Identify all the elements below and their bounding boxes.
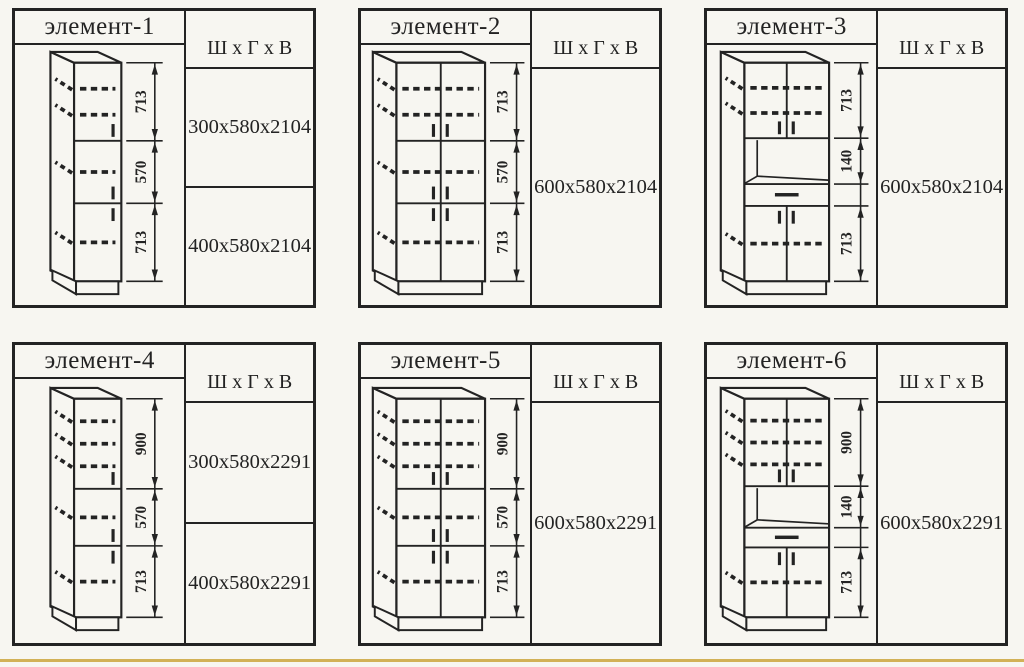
panel-6-dims-column: Ш x Г x В 600x580x2291: [878, 345, 1005, 643]
svg-text:713: 713: [495, 90, 512, 113]
panel-6-size-value: 600x580x2291: [878, 403, 1005, 643]
svg-text:713: 713: [839, 232, 856, 255]
panel-4-dims-column: Ш x Г x В 300x580x2291 400x580x2291: [186, 345, 313, 643]
panel-1-left-column: элемент-1 713570713: [15, 11, 186, 305]
panel-6-title: элемент-6: [707, 345, 876, 379]
panel-2-size-value: 600x580x2104: [532, 69, 659, 305]
svg-text:713: 713: [495, 231, 512, 254]
panel-5-dims-column: Ш x Г x В 600x580x2291: [532, 345, 659, 643]
svg-text:900: 900: [495, 432, 512, 455]
panel-2-left-column: элемент-2 713570713: [361, 11, 532, 305]
element-panel-3: элемент-3 713140713 Ш x Г x В 600x580x21…: [704, 8, 1008, 308]
element-panel-4: элемент-4 900570713 Ш x Г x В 300x580x22…: [12, 342, 316, 646]
svg-text:570: 570: [495, 160, 512, 183]
panel-4-size-value-2: 400x580x2291: [186, 524, 313, 643]
cabinet-sketch-3: 713140713: [707, 45, 876, 305]
element-panel-6: элемент-6 900140713 Ш x Г x В 600x580x22…: [704, 342, 1008, 646]
panel-4-dims-header: Ш x Г x В: [186, 345, 313, 403]
panel-4-title: элемент-4: [15, 345, 184, 379]
panel-1-size-value-2: 400x580x2104: [186, 188, 313, 305]
svg-text:570: 570: [495, 506, 512, 529]
panel-6-dims-header: Ш x Г x В: [878, 345, 1005, 403]
cabinet-drawing-5: 900570713: [361, 379, 530, 643]
scanned-furniture-spec-sheet: элемент-1 713570713 Ш x Г x В 300x580x21…: [0, 0, 1024, 667]
svg-text:713: 713: [133, 231, 150, 254]
svg-text:140: 140: [839, 149, 856, 172]
panel-6-left-column: элемент-6 900140713: [707, 345, 878, 643]
element-panel-2: элемент-2 713570713 Ш x Г x В 600x580x21…: [358, 8, 662, 308]
cabinet-sketch-6: 900140713: [707, 379, 876, 643]
svg-text:713: 713: [839, 89, 856, 112]
svg-text:713: 713: [133, 90, 150, 113]
panel-3-size-value: 600x580x2104: [878, 69, 1005, 305]
panel-3-dims-header: Ш x Г x В: [878, 11, 1005, 69]
panel-5-title: элемент-5: [361, 345, 530, 379]
scan-accent-line: [0, 659, 1024, 662]
cabinet-sketch-5: 900570713: [361, 379, 530, 643]
panel-4-left-column: элемент-4 900570713: [15, 345, 186, 643]
svg-text:713: 713: [839, 571, 856, 594]
panel-1-dims-header: Ш x Г x В: [186, 11, 313, 69]
cabinet-sketch-2: 713570713: [361, 45, 530, 305]
cabinet-sketch-4: 900570713: [15, 379, 184, 643]
panels-grid: элемент-1 713570713 Ш x Г x В 300x580x21…: [12, 8, 1008, 646]
cabinet-drawing-1: 713570713: [15, 45, 184, 305]
svg-text:570: 570: [133, 160, 150, 183]
panel-1-dims-column: Ш x Г x В 300x580x2104 400x580x2104: [186, 11, 313, 305]
panel-3-dims-column: Ш x Г x В 600x580x2104: [878, 11, 1005, 305]
svg-text:900: 900: [133, 432, 150, 455]
cabinet-drawing-4: 900570713: [15, 379, 184, 643]
svg-text:570: 570: [133, 506, 150, 529]
svg-text:140: 140: [839, 495, 856, 518]
panel-1-size-value-1: 300x580x2104: [186, 69, 313, 188]
cabinet-sketch-1: 713570713: [15, 45, 184, 305]
panel-3-title: элемент-3: [707, 11, 876, 45]
panel-2-title: элемент-2: [361, 11, 530, 45]
panel-5-dims-header: Ш x Г x В: [532, 345, 659, 403]
cabinet-drawing-3: 713140713: [707, 45, 876, 305]
cabinet-drawing-6: 900140713: [707, 379, 876, 643]
element-panel-1: элемент-1 713570713 Ш x Г x В 300x580x21…: [12, 8, 316, 308]
panel-2-dims-header: Ш x Г x В: [532, 11, 659, 69]
svg-text:713: 713: [133, 570, 150, 593]
panel-5-left-column: элемент-5 900570713: [361, 345, 532, 643]
svg-text:900: 900: [839, 431, 856, 454]
svg-text:713: 713: [495, 570, 512, 593]
panel-3-left-column: элемент-3 713140713: [707, 11, 878, 305]
element-panel-5: элемент-5 900570713 Ш x Г x В 600x580x22…: [358, 342, 662, 646]
panel-1-title: элемент-1: [15, 11, 184, 45]
panel-4-size-value-1: 300x580x2291: [186, 403, 313, 524]
cabinet-drawing-2: 713570713: [361, 45, 530, 305]
panel-2-dims-column: Ш x Г x В 600x580x2104: [532, 11, 659, 305]
panel-5-size-value: 600x580x2291: [532, 403, 659, 643]
